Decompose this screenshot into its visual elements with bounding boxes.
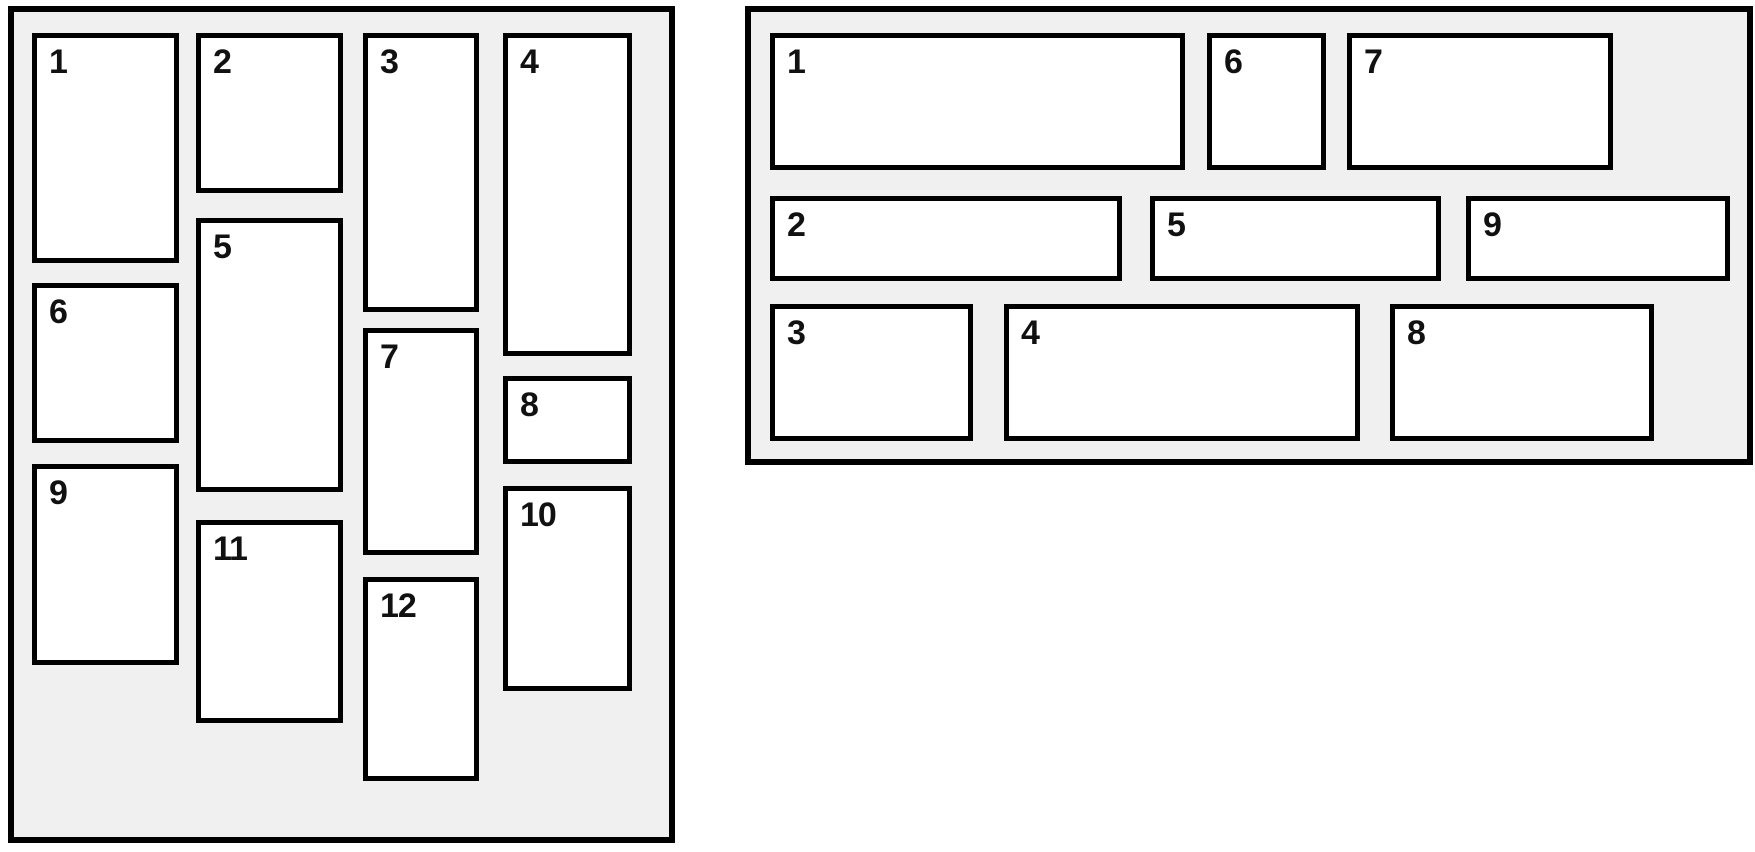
left-panel-item-1: 1 — [32, 33, 179, 263]
right-panel-item-4: 4 — [1004, 304, 1360, 441]
item-number: 6 — [37, 288, 174, 329]
item-number: 7 — [368, 333, 474, 374]
left-panel-item-11: 11 — [196, 520, 343, 723]
item-number: 10 — [508, 491, 627, 532]
left-panel-item-2: 2 — [196, 33, 343, 193]
item-number: 9 — [37, 469, 174, 510]
item-number: 4 — [1009, 309, 1355, 350]
item-number: 6 — [1212, 38, 1321, 79]
item-number: 3 — [775, 309, 968, 350]
item-number: 9 — [1471, 201, 1725, 242]
item-number: 3 — [368, 38, 474, 79]
right-panel-item-3: 3 — [770, 304, 973, 441]
item-number: 11 — [201, 525, 338, 566]
item-number: 12 — [368, 582, 474, 623]
item-number: 1 — [775, 38, 1180, 79]
item-number: 2 — [775, 201, 1117, 242]
layout-diagram-canvas: 1 2 3 4 5 6 7 8 9 10 11 12 1 2 3 4 5 6 7… — [0, 0, 1755, 852]
item-number: 2 — [201, 38, 338, 79]
item-number: 8 — [508, 381, 627, 422]
item-number: 5 — [201, 223, 338, 264]
right-panel-item-8: 8 — [1390, 304, 1654, 441]
left-panel-item-4: 4 — [503, 33, 632, 356]
left-panel-item-7: 7 — [363, 328, 479, 555]
item-number: 5 — [1155, 201, 1436, 242]
left-panel-item-5: 5 — [196, 218, 343, 492]
right-panel-item-7: 7 — [1347, 33, 1613, 170]
left-panel-item-3: 3 — [363, 33, 479, 312]
item-number: 1 — [37, 38, 174, 79]
right-panel-item-5: 5 — [1150, 196, 1441, 281]
left-panel-item-6: 6 — [32, 283, 179, 443]
left-panel-item-12: 12 — [363, 577, 479, 781]
item-number: 4 — [508, 38, 627, 79]
left-panel-item-9: 9 — [32, 464, 179, 665]
item-number: 8 — [1395, 309, 1649, 350]
right-panel-item-2: 2 — [770, 196, 1122, 281]
right-panel-item-6: 6 — [1207, 33, 1326, 170]
left-masonry-panel: 1 2 3 4 5 6 7 8 9 10 11 12 — [8, 6, 675, 843]
item-number: 7 — [1352, 38, 1608, 79]
right-rows-panel: 1 2 3 4 5 6 7 8 9 — [745, 6, 1753, 465]
left-panel-item-10: 10 — [503, 486, 632, 691]
right-panel-item-1: 1 — [770, 33, 1185, 170]
right-panel-item-9: 9 — [1466, 196, 1730, 281]
left-panel-item-8: 8 — [503, 376, 632, 464]
